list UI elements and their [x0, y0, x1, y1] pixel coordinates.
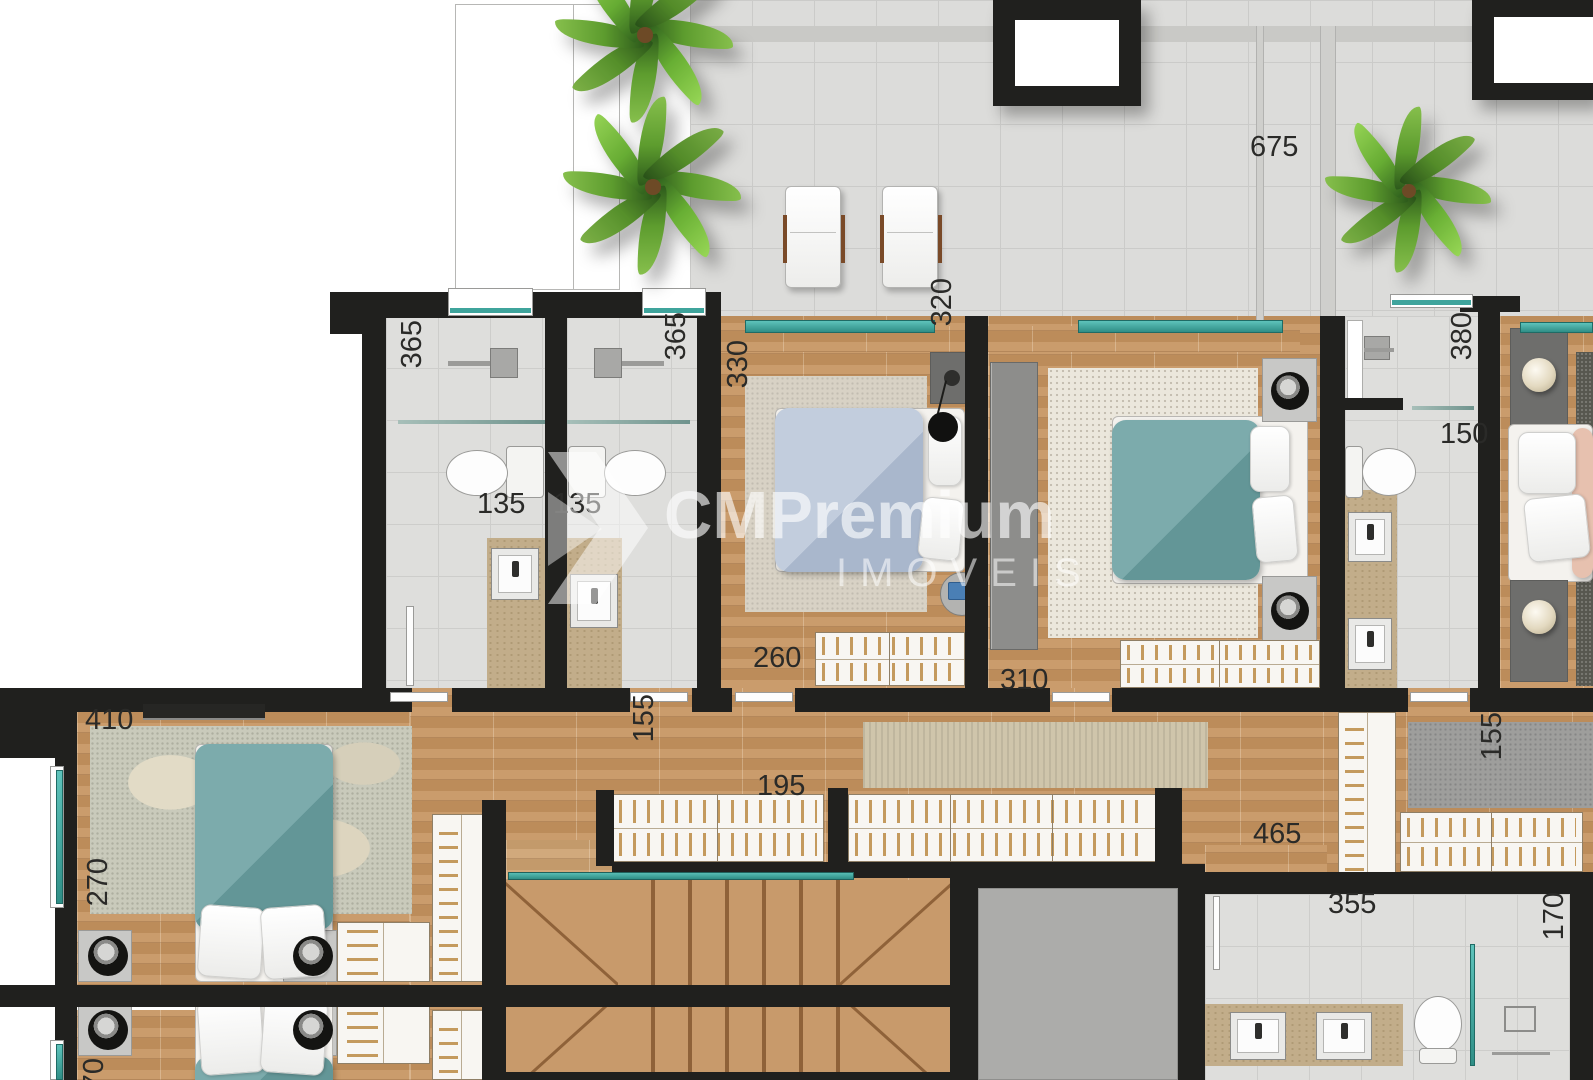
toilet-icon	[1345, 446, 1363, 498]
door-leaf	[1410, 692, 1468, 702]
dimension-label-bath3-depth: 380	[1448, 312, 1477, 360]
wall	[1155, 788, 1182, 868]
dimension-label-terrace-depth: 320	[928, 278, 957, 326]
closet-divider	[717, 795, 718, 861]
door-leaf	[735, 692, 793, 702]
stairs-flight-upper	[618, 880, 840, 985]
shower-icon	[1504, 1006, 1536, 1032]
dimension-label-bath4-depth: 170	[1540, 892, 1569, 940]
closet	[337, 998, 430, 1064]
closet	[815, 632, 965, 686]
sink-icon	[1230, 1012, 1286, 1060]
dimension-label-bedroom3-depth: 270	[84, 858, 113, 906]
closet-divider	[1052, 795, 1053, 861]
sink-icon	[1348, 618, 1392, 670]
wall	[828, 788, 848, 866]
wall	[596, 790, 614, 866]
stairs-corner	[506, 880, 618, 985]
wall	[1205, 872, 1593, 894]
pillow	[1518, 432, 1576, 494]
wall	[1178, 888, 1205, 1080]
tv-console	[143, 704, 265, 718]
door-leaf	[390, 692, 448, 702]
wall	[1345, 398, 1403, 410]
dimension-label-bath4-width: 355	[1328, 890, 1376, 919]
window-glass	[1520, 322, 1593, 333]
pillow	[1523, 493, 1591, 563]
wall	[1570, 894, 1593, 1080]
wall	[1112, 688, 1408, 712]
shower-icon	[490, 348, 518, 378]
sink-icon	[570, 574, 618, 628]
shower-glass-panel	[1470, 944, 1475, 1066]
wall	[950, 878, 978, 1080]
bedroom1-duvet	[775, 408, 923, 572]
dimension-label-bath1-width: 135	[477, 490, 525, 519]
pillow	[1250, 426, 1290, 492]
sink-icon	[491, 548, 539, 600]
glass-shelf	[567, 420, 690, 424]
shower-icon	[594, 348, 622, 378]
lamp-icon	[1271, 592, 1309, 630]
lamp-icon	[293, 936, 333, 976]
lamp-icon	[1522, 600, 1556, 634]
dimension-label-bedroom2-width: 310	[1000, 666, 1048, 695]
pillow	[1251, 494, 1299, 563]
toilet-icon	[1414, 996, 1462, 1052]
door-leaf	[406, 606, 414, 686]
closet-divider	[950, 795, 951, 861]
bathroom3-window	[1390, 294, 1473, 308]
skylight-opening	[1015, 20, 1119, 86]
dimension-label-bedroom4-depth: 270	[80, 1058, 109, 1080]
closet-divider	[1219, 641, 1220, 687]
dimension-label-hall-length: 195	[757, 772, 805, 801]
wall	[1478, 296, 1500, 712]
closet	[612, 794, 824, 862]
palm-tree-icon	[566, 100, 738, 272]
lamp-icon	[293, 1010, 333, 1050]
shower-tray	[1347, 320, 1363, 404]
sink-icon	[1316, 1012, 1372, 1060]
terrace-top-edge	[690, 26, 1593, 42]
bathroom1-window	[448, 288, 533, 316]
glass-railing	[508, 872, 854, 880]
wall	[362, 292, 386, 712]
wall	[330, 292, 364, 334]
pillow	[917, 496, 965, 562]
wall	[965, 316, 988, 712]
closet-divider	[1491, 813, 1492, 871]
toilet-icon	[1362, 448, 1416, 496]
wall	[0, 688, 77, 758]
wall	[1320, 316, 1345, 712]
dimension-label-bedroom3-width: 410	[85, 706, 133, 735]
lamp-icon	[1271, 372, 1309, 410]
lounge-chair-icon	[785, 186, 841, 288]
stairs-corner	[840, 1007, 950, 1080]
closet	[1120, 640, 1320, 688]
dimension-label-bath2-depth: 365	[662, 312, 691, 360]
wardrobe	[990, 362, 1038, 650]
wall	[452, 688, 630, 712]
wall	[978, 864, 1205, 888]
toilet-icon	[604, 450, 666, 496]
shower-arm-icon	[1492, 1052, 1550, 1055]
closet	[848, 794, 1156, 862]
hallway-runner-rug	[863, 722, 1208, 788]
lamp-icon	[88, 936, 128, 976]
dimension-label-bath3-width: 150	[1440, 420, 1488, 449]
wall	[697, 292, 721, 712]
wall	[482, 800, 506, 1080]
door-leaf	[1052, 692, 1110, 702]
skylight-opening-2	[1494, 17, 1593, 83]
elevator-shaft	[978, 888, 1178, 1080]
window-glass	[1078, 320, 1283, 333]
tv-shelf-line	[143, 718, 265, 720]
dimension-label-bath1-depth: 365	[398, 320, 427, 368]
wall	[482, 1072, 975, 1080]
lamp-icon	[944, 370, 960, 386]
closet-divider	[889, 633, 890, 685]
dimension-label-hall-right-length: 465	[1253, 820, 1301, 849]
window-glass	[56, 1044, 63, 1080]
dimension-label-bedroom1-depth: 330	[724, 340, 753, 388]
wall	[1470, 688, 1593, 712]
closet	[337, 922, 430, 982]
shower-arm-icon	[448, 361, 490, 366]
dimension-label-hall-right-width: 155	[1478, 712, 1507, 760]
palm-tree-icon	[1328, 110, 1488, 270]
pillow	[196, 996, 265, 1076]
pillow	[197, 904, 266, 980]
closet	[1338, 712, 1396, 878]
shower-arm-icon	[1364, 348, 1394, 352]
lamp-icon	[1522, 358, 1556, 392]
wall	[692, 688, 732, 712]
sink-icon	[1348, 512, 1392, 562]
window-glass	[56, 770, 63, 904]
dimension-label-hall-width: 155	[630, 694, 659, 742]
door-leaf	[1213, 896, 1220, 970]
stairs-corner	[506, 1007, 618, 1080]
dimension-label-bedroom1-width: 260	[753, 644, 801, 673]
lamp-icon	[928, 412, 958, 442]
stairs-corner	[840, 880, 950, 985]
glass-shelf	[1412, 406, 1474, 410]
dimension-label-terrace-width: 675	[1250, 133, 1298, 162]
window-glass	[745, 320, 935, 333]
lounge-chair-icon	[882, 186, 938, 288]
lamp-icon	[88, 1010, 128, 1050]
bedroom3-duvet	[195, 744, 333, 930]
toilet-icon	[1419, 1048, 1457, 1064]
glass-shelf	[398, 420, 545, 424]
bedroom2-duvet	[1112, 420, 1260, 580]
shower-arm-icon	[622, 361, 664, 366]
stairs-flight-lower	[618, 1007, 840, 1080]
terrace-divider	[1256, 26, 1264, 326]
floor-plan: 6753203653653303801501351352603104101551…	[0, 0, 1593, 1080]
dimension-label-bath2-width: 135	[553, 490, 601, 519]
